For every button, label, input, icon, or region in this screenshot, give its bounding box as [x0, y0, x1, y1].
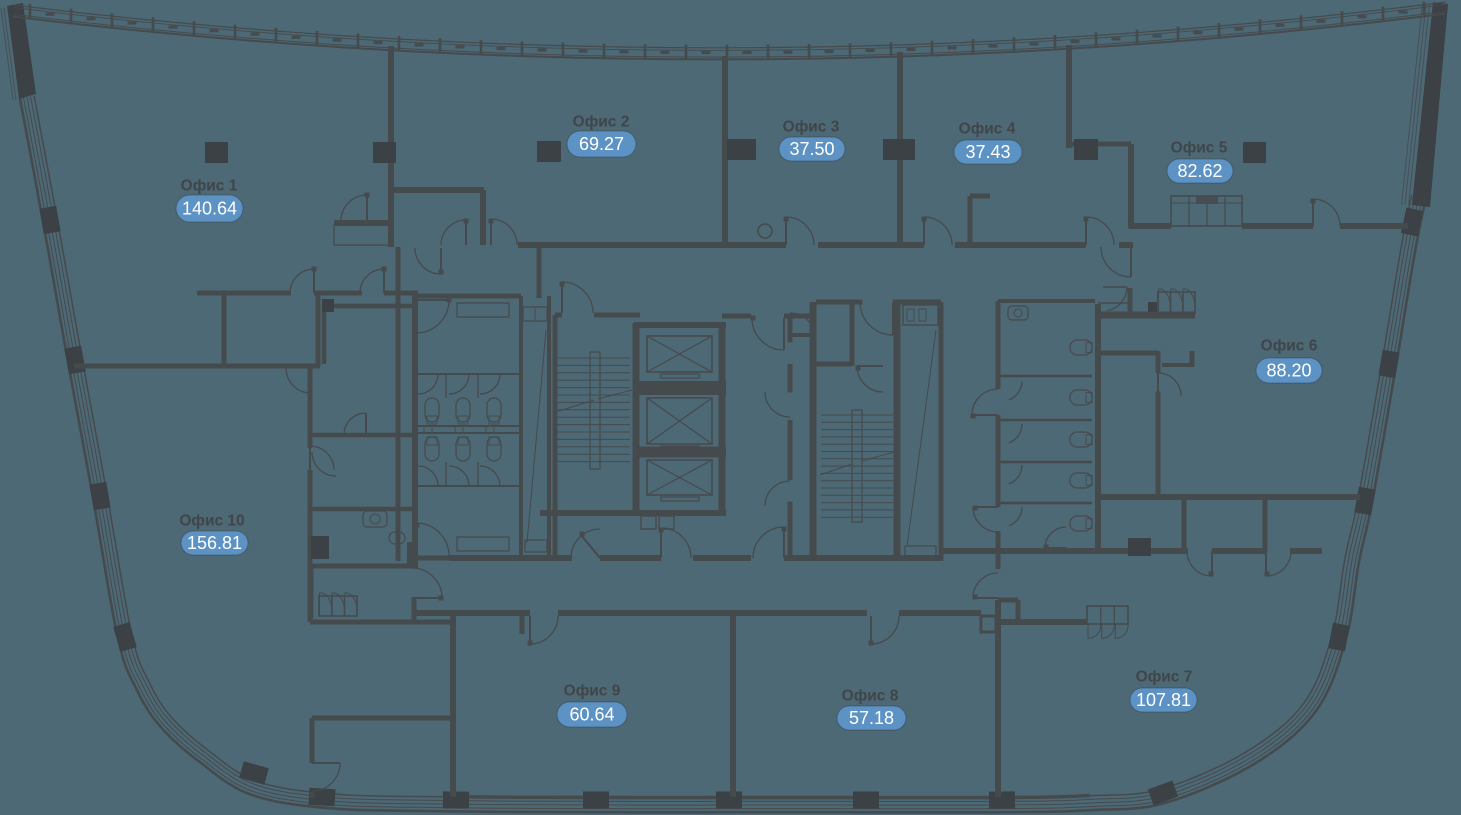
svg-text:88.20: 88.20 [1266, 361, 1311, 381]
svg-text:37.43: 37.43 [965, 142, 1010, 162]
svg-text:69.27: 69.27 [579, 134, 624, 154]
svg-text:156.81: 156.81 [187, 533, 242, 553]
svg-text:140.64: 140.64 [182, 199, 237, 219]
svg-text:37.50: 37.50 [789, 139, 834, 159]
svg-text:57.18: 57.18 [849, 708, 894, 728]
svg-text:Офис 8: Офис 8 [842, 688, 899, 705]
svg-text:Офис 9: Офис 9 [564, 683, 621, 700]
svg-text:Офис 5: Офис 5 [1171, 140, 1228, 157]
svg-text:Офис 1: Офис 1 [181, 178, 238, 195]
svg-text:107.81: 107.81 [1136, 690, 1191, 710]
svg-text:Офис 7: Офис 7 [1136, 669, 1193, 686]
svg-text:Офис 6: Офис 6 [1261, 338, 1318, 355]
svg-text:Офис 3: Офис 3 [783, 119, 840, 136]
svg-text:Офис 2: Офис 2 [573, 114, 630, 131]
svg-text:60.64: 60.64 [569, 705, 614, 725]
svg-text:82.62: 82.62 [1177, 161, 1222, 181]
svg-text:Офис 4: Офис 4 [959, 121, 1016, 138]
svg-text:Офис 10: Офис 10 [179, 513, 244, 530]
